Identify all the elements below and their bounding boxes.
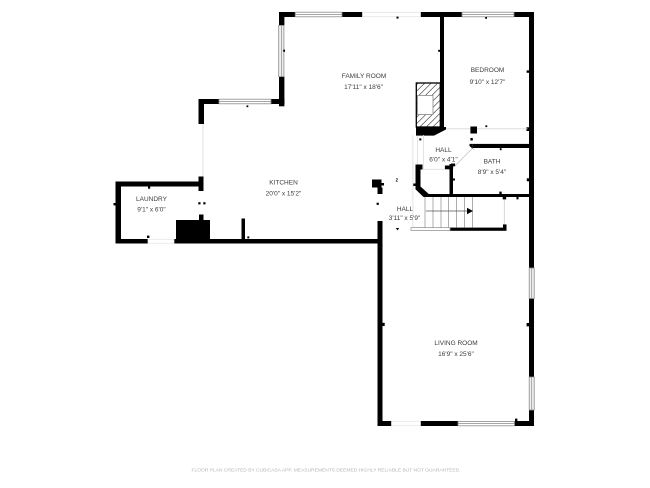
svg-text:8'9" x 5'4": 8'9" x 5'4" [478,169,507,176]
svg-text:16'9" x 25'6": 16'9" x 25'6" [438,351,474,358]
svg-text:HALL: HALL [397,206,414,213]
svg-text:9'1" x 6'0": 9'1" x 6'0" [137,207,166,214]
svg-text:6'0" x 4'1": 6'0" x 4'1" [429,157,458,164]
svg-text:LIVING ROOM: LIVING ROOM [434,340,477,347]
svg-text:KITCHEN: KITCHEN [269,180,298,187]
svg-text:FAMILY ROOM: FAMILY ROOM [342,73,387,80]
svg-text:BEDROOM: BEDROOM [471,67,505,74]
svg-text:LAUNDRY: LAUNDRY [136,196,168,203]
svg-text:3'11" x 5'9": 3'11" x 5'9" [389,215,421,222]
svg-text:20'0" x 15'2": 20'0" x 15'2" [266,191,302,198]
svg-text:17'11" x 18'6": 17'11" x 18'6" [344,84,383,91]
svg-text:9'10" x 12'7": 9'10" x 12'7" [470,79,506,86]
svg-text:FLOOR PLAN CREATED BY CUBICASA: FLOOR PLAN CREATED BY CUBICASA APP. MEAS… [192,468,461,474]
svg-text:BATH: BATH [484,159,501,166]
svg-text:HALL: HALL [435,147,452,154]
